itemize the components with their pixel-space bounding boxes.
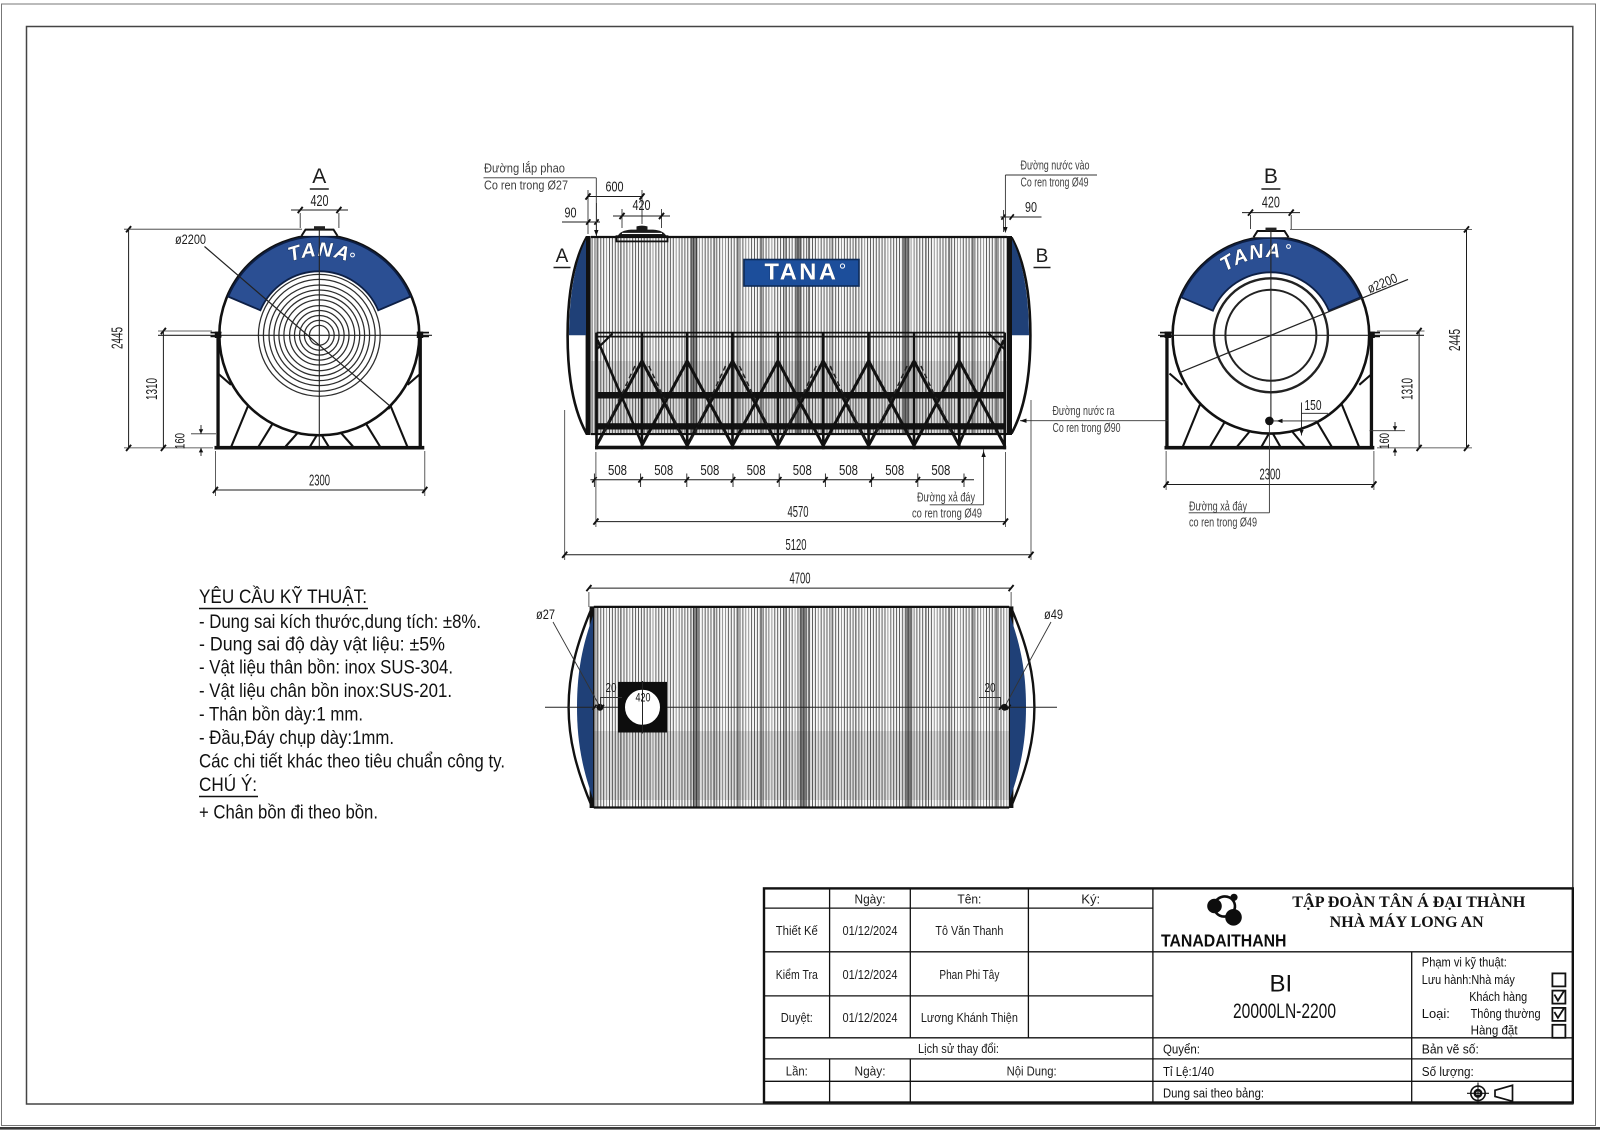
svg-text:Quyển:: Quyển: bbox=[1163, 1042, 1200, 1057]
svg-text:Ký:: Ký: bbox=[1081, 891, 1100, 906]
svg-text:- Vật liệu thân bồn: inox SUS-: - Vật liệu thân bồn: inox SUS-304. bbox=[199, 658, 453, 679]
svg-text:Đường xả đáy: Đường xả đáy bbox=[917, 490, 975, 505]
svg-text:Tỉ Lệ:1/40: Tỉ Lệ:1/40 bbox=[1163, 1064, 1214, 1079]
svg-text:Dung sai theo bảng:: Dung sai theo bảng: bbox=[1163, 1085, 1264, 1100]
svg-text:508: 508 bbox=[839, 463, 858, 479]
svg-text:Lưu hành:Nhà máy: Lưu hành:Nhà máy bbox=[1422, 972, 1515, 987]
svg-text:90: 90 bbox=[565, 206, 577, 222]
svg-text:Lần:: Lần: bbox=[786, 1064, 808, 1079]
svg-text:4700: 4700 bbox=[790, 571, 811, 588]
svg-text:co ren trong Ø49: co ren trong Ø49 bbox=[912, 506, 982, 521]
svg-text:Khách hàng: Khách hàng bbox=[1469, 989, 1527, 1004]
svg-text:160: 160 bbox=[1377, 433, 1392, 449]
svg-text:01/12/2024: 01/12/2024 bbox=[843, 967, 898, 982]
svg-text:Phan Phi Tây: Phan Phi Tây bbox=[939, 967, 999, 982]
svg-text:2300: 2300 bbox=[1260, 467, 1281, 484]
svg-text:Số lượng:: Số lượng: bbox=[1422, 1064, 1474, 1079]
svg-text:ø49: ø49 bbox=[1044, 607, 1063, 622]
svg-text:01/12/2024: 01/12/2024 bbox=[843, 923, 898, 938]
svg-text:- Thân bồn dày:1 mm.: - Thân bồn dày:1 mm. bbox=[199, 705, 363, 726]
svg-text:420: 420 bbox=[636, 691, 651, 705]
svg-text:TANADAITHANH: TANADAITHANH bbox=[1161, 931, 1287, 951]
svg-text:508: 508 bbox=[608, 463, 627, 479]
svg-text:508: 508 bbox=[747, 463, 766, 479]
svg-text:4570: 4570 bbox=[788, 504, 809, 521]
svg-text:BI: BI bbox=[1270, 971, 1293, 998]
svg-text:20000LN-2200: 20000LN-2200 bbox=[1233, 1000, 1336, 1023]
svg-text:Co ren trong Ø49: Co ren trong Ø49 bbox=[1021, 175, 1089, 190]
svg-text:Thiết Kế: Thiết Kế bbox=[776, 923, 819, 938]
svg-text:508: 508 bbox=[793, 463, 812, 479]
svg-text:Đường nước ra: Đường nước ra bbox=[1053, 403, 1115, 418]
svg-text:Đường lắp phao: Đường lắp phao bbox=[484, 161, 565, 176]
svg-text:Đường xả đáy: Đường xả đáy bbox=[1189, 498, 1247, 513]
svg-text:Duyệt:: Duyệt: bbox=[781, 1010, 813, 1025]
svg-text:Thông thường: Thông thường bbox=[1471, 1006, 1541, 1021]
svg-text:Lịch sử thay đổi:: Lịch sử thay đổi: bbox=[918, 1041, 999, 1056]
svg-text:Loại:: Loại: bbox=[1422, 1006, 1450, 1021]
svg-text:A: A bbox=[312, 165, 326, 188]
svg-text:- Dung sai kích thước,dung tíc: - Dung sai kích thước,dung tích: ±8%. bbox=[199, 612, 481, 633]
svg-text:420: 420 bbox=[311, 193, 329, 210]
svg-text:TANA: TANA bbox=[765, 258, 839, 284]
svg-text:420: 420 bbox=[633, 198, 651, 214]
svg-text:Lương Khánh Thiện: Lương Khánh Thiện bbox=[921, 1010, 1018, 1025]
svg-text:Đường nước vào: Đường nước vào bbox=[1021, 158, 1090, 173]
svg-text:Bản vẽ số:: Bản vẽ số: bbox=[1422, 1042, 1479, 1057]
svg-text:ø27: ø27 bbox=[536, 607, 555, 622]
svg-text:- Vật liệu chân bồn inox:SUS-2: - Vật liệu chân bồn inox:SUS-201. bbox=[199, 681, 452, 702]
svg-text:Co ren trong Ø90: Co ren trong Ø90 bbox=[1053, 420, 1121, 435]
svg-text:- Dung sai độ dày vật liệu: ±5: - Dung sai độ dày vật liệu: ±5% bbox=[199, 635, 445, 656]
svg-text:2445: 2445 bbox=[1447, 329, 1464, 351]
svg-text:co ren trong Ø49: co ren trong Ø49 bbox=[1189, 514, 1257, 529]
svg-text:Ngày:: Ngày: bbox=[855, 1064, 886, 1079]
svg-text:508: 508 bbox=[885, 463, 904, 479]
svg-text:ø2200: ø2200 bbox=[175, 232, 206, 247]
svg-text:TẬP ĐOÀN TÂN Á ĐẠI THÀNH: TẬP ĐOÀN TÂN Á ĐẠI THÀNH bbox=[1292, 894, 1525, 911]
svg-text:2445: 2445 bbox=[110, 327, 127, 349]
svg-text:20: 20 bbox=[985, 680, 996, 695]
svg-text:Hàng đặt: Hàng đặt bbox=[1471, 1023, 1518, 1038]
svg-text:2300: 2300 bbox=[309, 473, 330, 490]
svg-text:508: 508 bbox=[931, 463, 950, 479]
svg-text:B: B bbox=[1036, 246, 1049, 267]
svg-text:YÊU CẦU KỸ THUẬT:: YÊU CẦU KỸ THUẬT: bbox=[199, 584, 367, 608]
svg-text:Tên:: Tên: bbox=[957, 891, 981, 906]
svg-text:150: 150 bbox=[1305, 398, 1322, 414]
svg-text:Nội Dung:: Nội Dung: bbox=[1007, 1064, 1057, 1079]
svg-text:A: A bbox=[556, 246, 569, 267]
svg-text:508: 508 bbox=[654, 463, 673, 479]
svg-text:90: 90 bbox=[1025, 200, 1037, 216]
svg-text:420: 420 bbox=[1262, 195, 1280, 212]
svg-text:20: 20 bbox=[606, 680, 617, 695]
svg-text:508: 508 bbox=[700, 463, 719, 479]
svg-text:Các chi tiết khác theo tiêu ch: Các chi tiết khác theo tiêu chuẩn công t… bbox=[199, 752, 505, 773]
svg-text:1310: 1310 bbox=[144, 378, 161, 400]
svg-text:600: 600 bbox=[606, 180, 624, 196]
svg-text:1310: 1310 bbox=[1400, 378, 1417, 400]
svg-text:CHÚ Ý:: CHÚ Ý: bbox=[199, 773, 257, 796]
svg-text:Ngày:: Ngày: bbox=[855, 891, 886, 906]
svg-text:5120: 5120 bbox=[786, 537, 807, 554]
svg-text:160: 160 bbox=[173, 433, 188, 449]
svg-text:Tô Văn Thanh: Tô Văn Thanh bbox=[935, 923, 1003, 938]
svg-text:Co ren trong Ø27: Co ren trong Ø27 bbox=[484, 178, 568, 193]
svg-text:B: B bbox=[1264, 165, 1278, 188]
svg-text:NHÀ MÁY LONG AN: NHÀ MÁY LONG AN bbox=[1330, 914, 1484, 931]
svg-text:01/12/2024: 01/12/2024 bbox=[843, 1010, 898, 1025]
svg-text:Phạm vi kỹ thuật:: Phạm vi kỹ thuật: bbox=[1422, 955, 1507, 970]
svg-text:- Đầu,Đáy chụp dày:1mm.: - Đầu,Đáy chụp dày:1mm. bbox=[199, 728, 394, 749]
svg-text:+ Chân bồn đi theo bồn.: + Chân bồn đi theo bồn. bbox=[199, 803, 378, 824]
svg-text:Kiểm Tra: Kiểm Tra bbox=[776, 967, 819, 982]
